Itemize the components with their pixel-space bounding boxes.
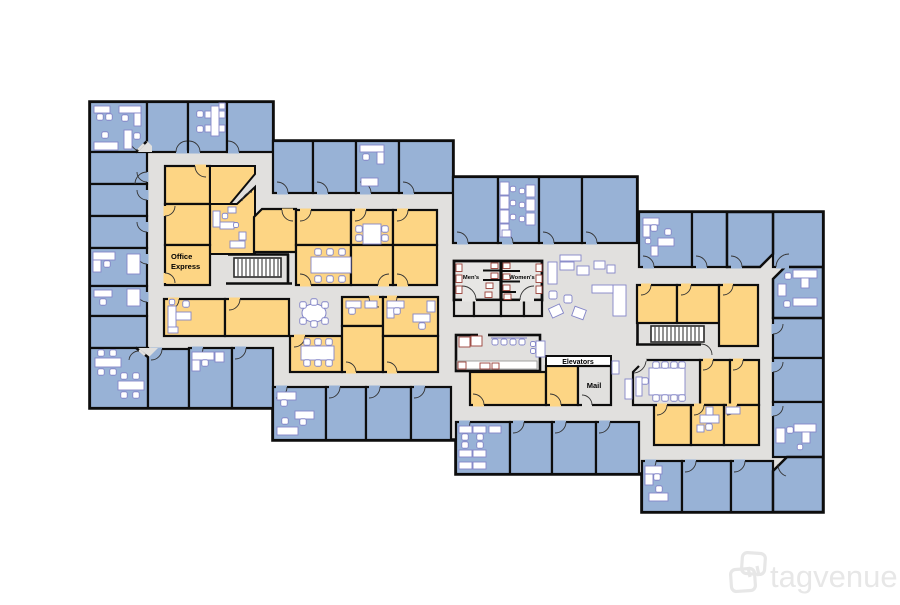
- svg-text:Express: Express: [171, 262, 200, 271]
- svg-text:tagvenue: tagvenue: [770, 559, 898, 594]
- svg-text:Office: Office: [171, 252, 192, 261]
- svg-text:Women's: Women's: [509, 275, 534, 281]
- svg-text:Men's: Men's: [463, 275, 479, 281]
- svg-text:Mail: Mail: [587, 381, 602, 390]
